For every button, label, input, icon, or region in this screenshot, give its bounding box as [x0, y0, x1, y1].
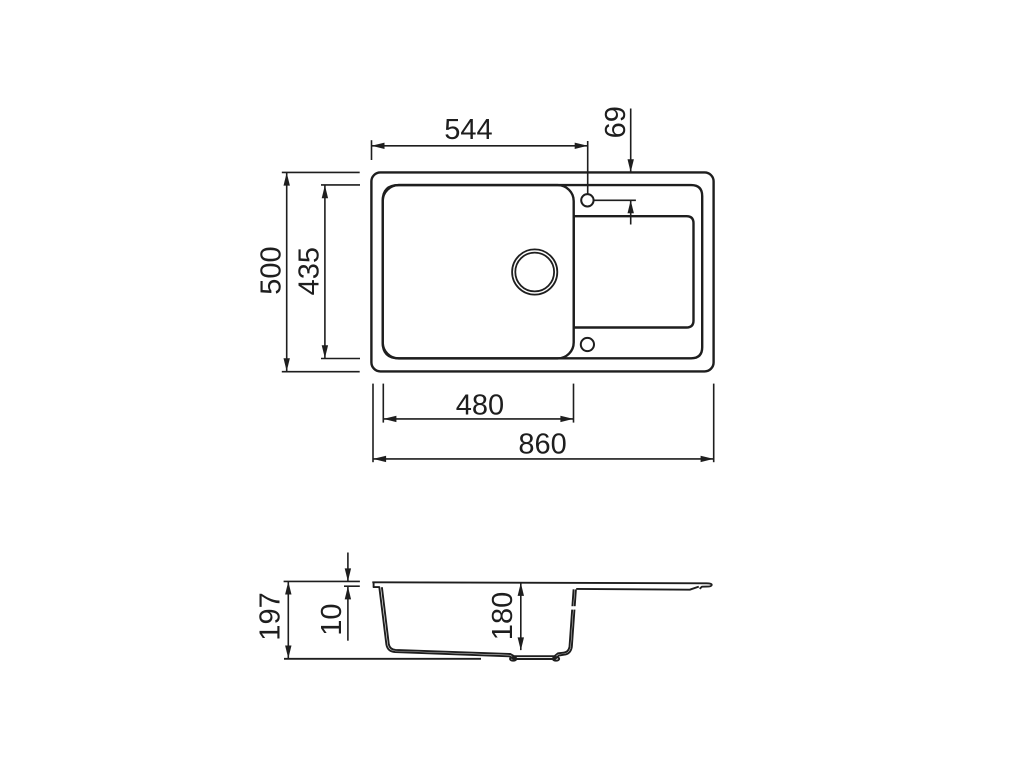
svg-text:10: 10: [316, 603, 348, 635]
svg-text:480: 480: [456, 390, 504, 422]
svg-text:860: 860: [518, 429, 566, 461]
svg-text:69: 69: [600, 106, 632, 138]
svg-text:435: 435: [293, 247, 325, 295]
svg-text:544: 544: [444, 114, 492, 146]
svg-text:197: 197: [255, 592, 287, 640]
svg-text:180: 180: [487, 592, 519, 640]
svg-text:500: 500: [256, 246, 288, 294]
